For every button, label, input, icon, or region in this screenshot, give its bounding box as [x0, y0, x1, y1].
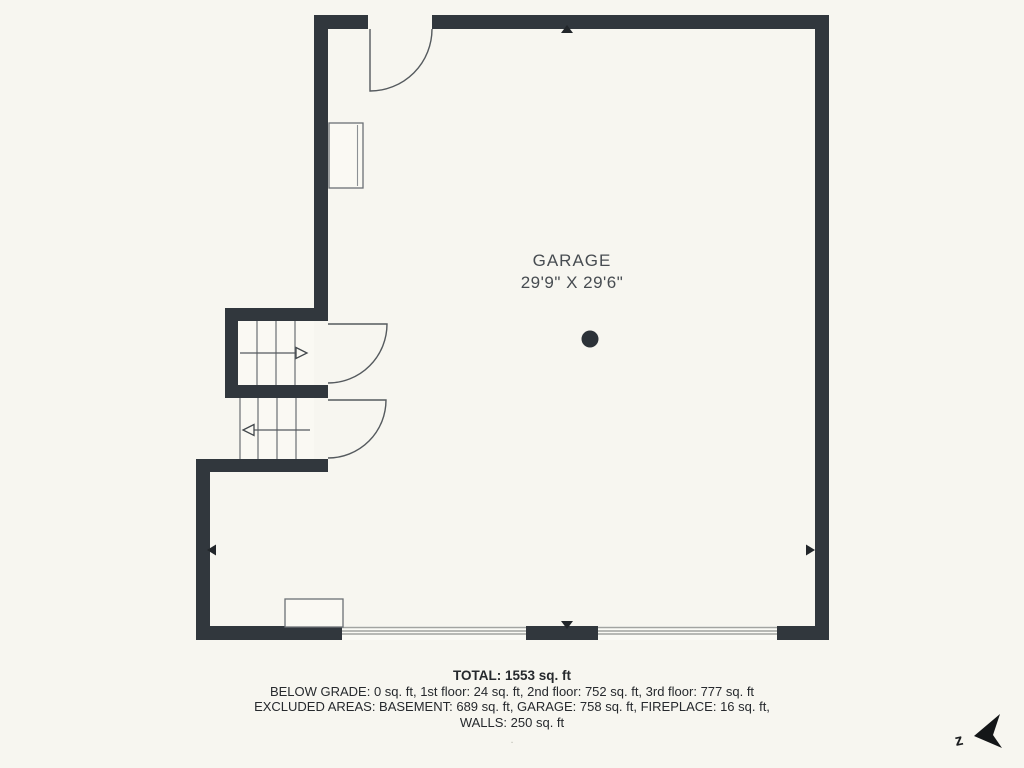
- door-top: [370, 29, 432, 91]
- room-dimensions: 29'9" X 29'6": [422, 272, 722, 294]
- door-stair-upper: [328, 324, 387, 383]
- garage-door-a: [342, 626, 526, 640]
- wall-stair-top: [225, 308, 328, 321]
- stairs-upper: [238, 321, 314, 385]
- summary-line: EXCLUDED AREAS: BASEMENT: 689 sq. ft, GA…: [0, 699, 1024, 715]
- room-name: GARAGE: [422, 250, 722, 272]
- wall-stair-divider: [225, 385, 328, 398]
- garage-door-b: [598, 626, 777, 640]
- summary-footnote: .: [0, 735, 1024, 746]
- stairs-lower: [240, 398, 314, 459]
- wall-left-upper: [314, 15, 328, 321]
- wall-right: [815, 15, 829, 640]
- wall-stair-left: [225, 308, 238, 398]
- wall-cabinet: [329, 123, 363, 188]
- room-label: GARAGE 29'9" X 29'6": [422, 250, 722, 294]
- wall-top-right: [432, 15, 829, 29]
- column-dot: [582, 331, 599, 348]
- bottom-fixture: [285, 599, 343, 627]
- marker-right-icon: [806, 545, 815, 556]
- summary-line: WALLS: 250 sq. ft: [0, 715, 1024, 731]
- summary-line: BELOW GRADE: 0 sq. ft, 1st floor: 24 sq.…: [0, 684, 1024, 700]
- wall-stair-bottom: [196, 459, 328, 472]
- door-stair-lower: [328, 400, 386, 458]
- floorplan-drawing: z: [0, 0, 1024, 768]
- area-summary: TOTAL: 1553 sq. ft BELOW GRADE: 0 sq. ft…: [0, 668, 1024, 746]
- summary-total: TOTAL: 1553 sq. ft: [0, 668, 1024, 684]
